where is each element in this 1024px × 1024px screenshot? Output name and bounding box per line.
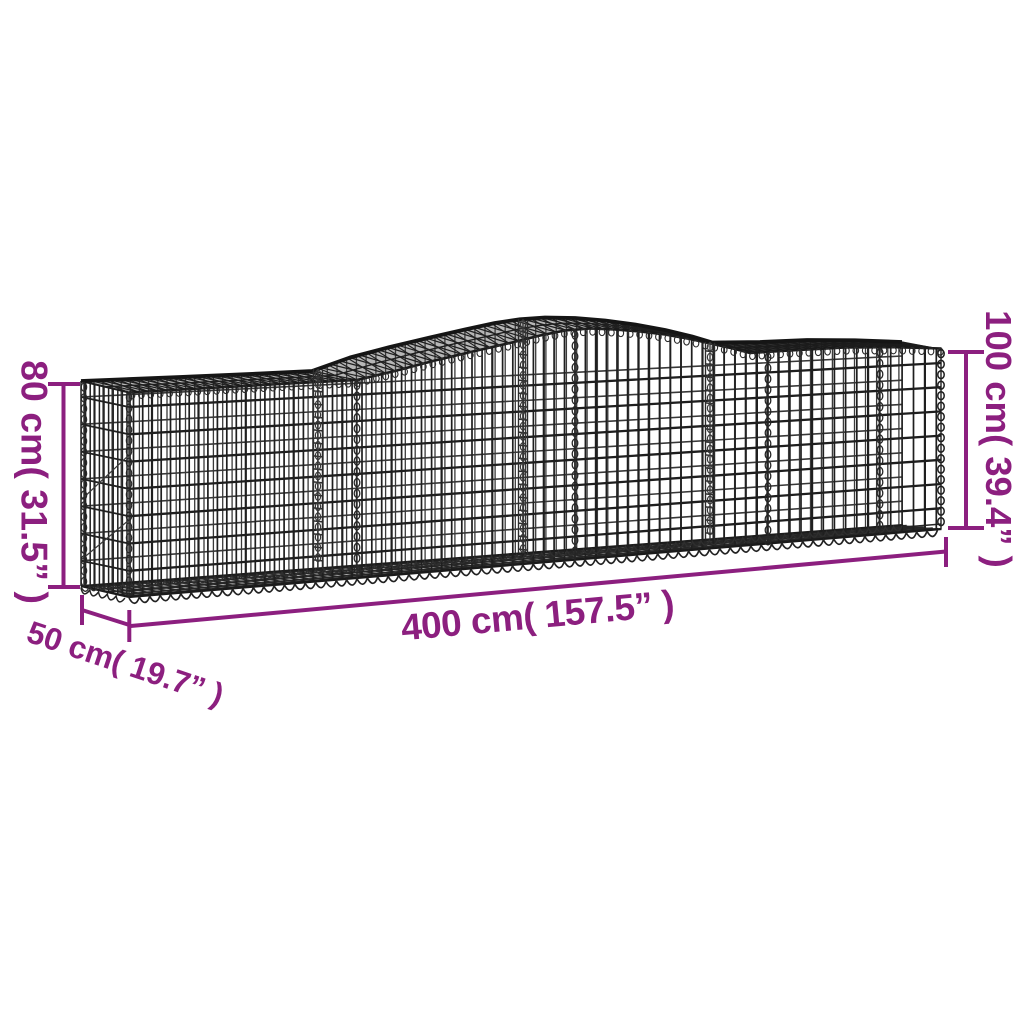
svg-text:100 cm( 39.4” ): 100 cm( 39.4” ) <box>978 310 1019 568</box>
svg-text:80 cm( 31.5” ): 80 cm( 31.5” ) <box>13 360 55 604</box>
